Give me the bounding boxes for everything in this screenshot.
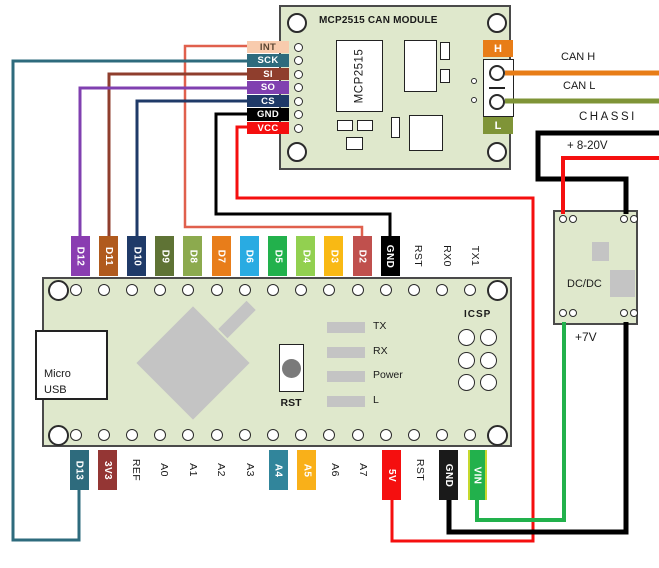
pin-label-top-d2: D2	[353, 236, 372, 276]
pin-label-top-tx1: TX1	[465, 236, 484, 276]
pin-label-top-d3: D3	[324, 236, 343, 276]
pin-label-bottom-a3: A3	[240, 450, 259, 490]
pin-label-bottom-a5: A5	[297, 450, 316, 490]
pin-label-bottom-gnd: GND	[439, 450, 458, 500]
chassis-label: CHASSI	[579, 111, 637, 123]
pin-label-top-d12: D12	[71, 236, 90, 276]
supply-voltage-label: + 8-20V	[567, 140, 608, 152]
mcp2515-pin-label-sck: SCK	[247, 54, 289, 67]
pin-label-top-d7: D7	[212, 236, 231, 276]
pin-label-top-d9: D9	[155, 236, 174, 276]
output-7v-label: +7V	[575, 330, 597, 344]
pin-label-top-d5: D5	[268, 236, 287, 276]
pin-label-bottom-a2: A2	[212, 450, 231, 490]
mcp2515-pin-label-cs: CS	[247, 95, 289, 108]
mcp2515-pin-label-gnd: GND	[247, 108, 289, 121]
pin-label-top-d6: D6	[240, 236, 259, 276]
pin-label-bottom-5v: 5V	[382, 450, 401, 500]
pin-label-bottom-ref: REF	[126, 450, 145, 490]
pin-label-top-d4: D4	[296, 236, 315, 276]
pin-label-bottom-d13: D13	[70, 450, 89, 490]
pin-label-bottom-a0: A0	[155, 450, 174, 490]
pin-label-top-rx0: RX0	[437, 236, 456, 276]
pin-label-top-d10: D10	[127, 236, 146, 276]
pin-label-bottom-a7: A7	[354, 450, 373, 490]
pin-label-bottom-a6: A6	[325, 450, 344, 490]
pin-label-top-d8: D8	[183, 236, 202, 276]
mcp2515-pin-label-so: SO	[247, 81, 289, 94]
pin-label-top-d11: D11	[99, 236, 118, 276]
labels-layer: CAN H CAN L CHASSI + 8-20V +7V D12D11D10…	[0, 0, 659, 568]
mcp2515-pin-label-int: INT	[247, 41, 289, 54]
pin-label-bottom-3v3: 3V3	[98, 450, 117, 490]
pin-label-bottom-vin: VIN	[468, 450, 487, 500]
pin-label-top-gnd: GND	[381, 236, 400, 276]
pin-label-bottom-a4: A4	[269, 450, 288, 490]
pin-label-bottom-a1: A1	[183, 450, 202, 490]
mcp2515-pin-label-vcc: VCC	[247, 122, 289, 135]
wiring-diagram: MCP2515 CAN MODULE MCP2515 H L	[0, 0, 659, 568]
pin-label-top-rst: RST	[409, 236, 428, 276]
can-h-label: CAN H	[561, 51, 595, 63]
can-l-label: CAN L	[563, 80, 595, 92]
mcp2515-pin-label-si: SI	[247, 68, 289, 81]
pin-label-bottom-rst: RST	[411, 450, 430, 490]
